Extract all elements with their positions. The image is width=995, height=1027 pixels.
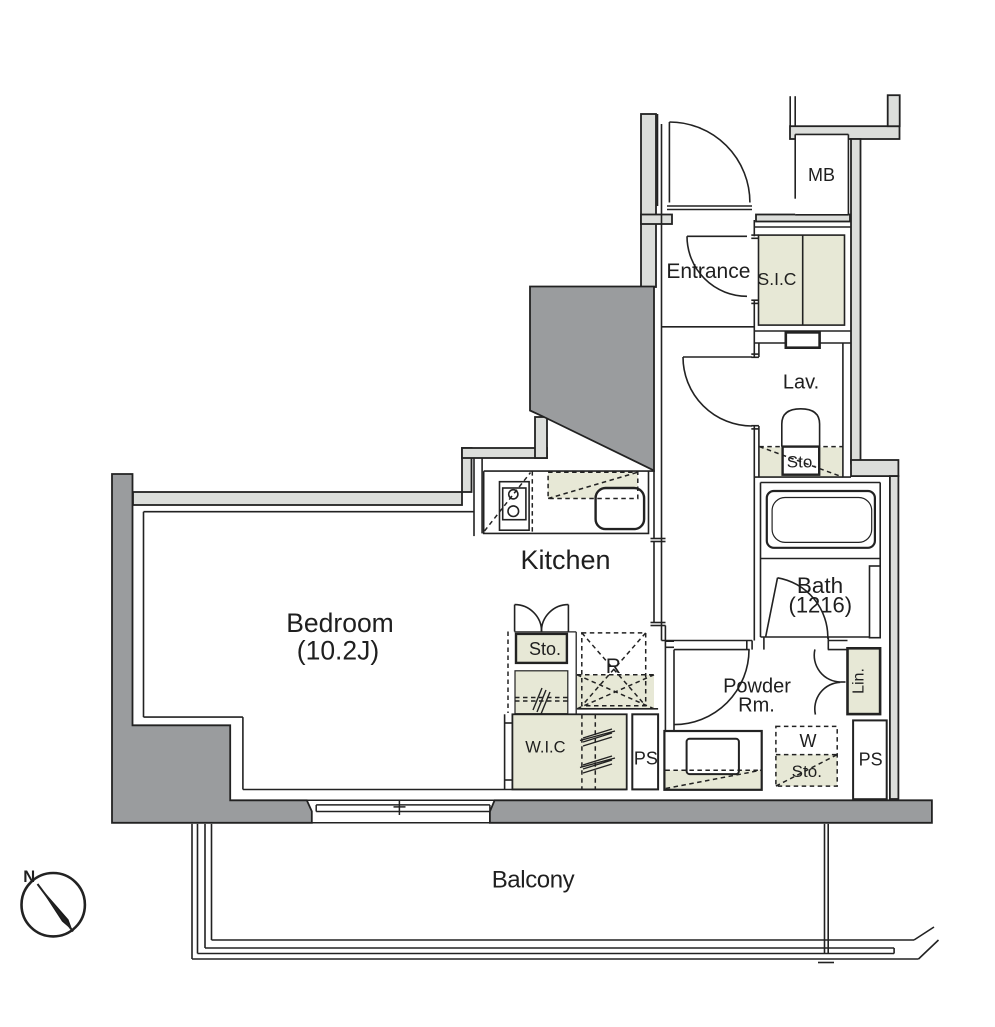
svg-text:Lin.: Lin. [851,668,868,694]
svg-text:R: R [606,655,621,678]
svg-text:Entrance: Entrance [666,260,750,283]
svg-text:PS: PS [859,750,883,770]
svg-text:W: W [800,731,817,751]
svg-text:Sto.: Sto. [792,762,822,781]
svg-text:Lav.: Lav. [783,372,819,394]
svg-text:Sto.: Sto. [787,453,817,472]
svg-text:Rm.: Rm. [738,694,775,716]
svg-text:Sto.: Sto. [529,639,561,659]
svg-text:Balcony: Balcony [492,867,575,894]
svg-text:Bedroom: Bedroom [286,608,394,638]
svg-text:(1216): (1216) [789,593,853,618]
svg-text:(10.2J): (10.2J) [297,636,379,666]
svg-text:PS: PS [634,749,658,769]
svg-text:N: N [23,868,35,886]
svg-text:MB: MB [808,165,835,185]
svg-text:Kitchen: Kitchen [520,545,610,575]
svg-text:W.I.C: W.I.C [525,739,565,757]
svg-text:S.I.C: S.I.C [758,269,797,289]
